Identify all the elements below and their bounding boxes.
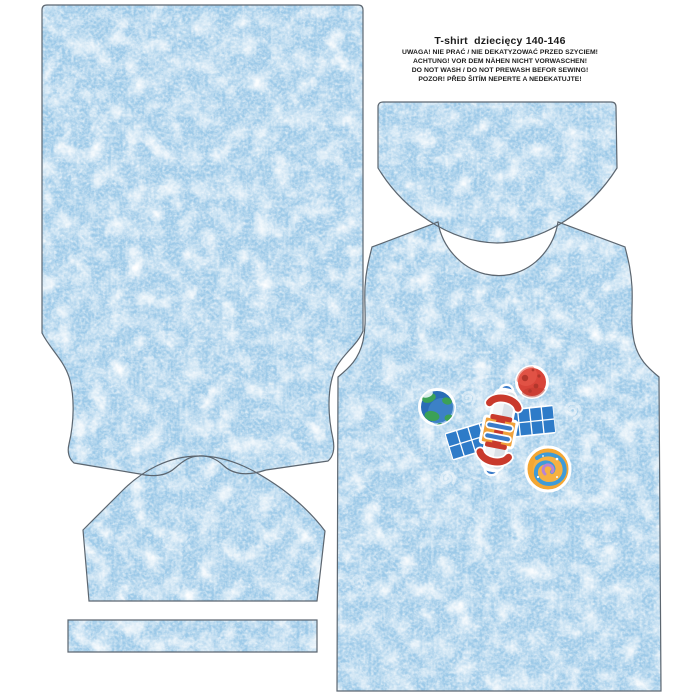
- back-panel-piece: [42, 5, 363, 476]
- spiral-galaxy-icon: [526, 447, 570, 491]
- header-text-block: T-shirt dziecięcy 140-146 UWAGA! NIE PRA…: [330, 35, 670, 84]
- care-warning-line-pl: UWAGA! NIE PRAĆ / NIE DEKATYZOWAĆ PRZED …: [330, 48, 670, 57]
- panel-title: T-shirt dziecięcy 140-146: [330, 35, 670, 48]
- pattern-panel-canvas: [0, 0, 700, 700]
- pattern-panel-preview: T-shirt dziecięcy 140-146 UWAGA! NIE PRA…: [0, 0, 700, 700]
- care-warning-line-cz: POZOR! PŘED ŠITÍM NEPERTE A NEDEKATUJTE!: [330, 75, 670, 84]
- care-warning-line-en: DO NOT WASH / DO NOT PREWASH BEFOR SEWIN…: [330, 66, 670, 75]
- hem-band-piece: [68, 620, 317, 652]
- care-warning-line-de: ACHTUNG! VOR DEM NÄHEN NICHT VORWASCHEN!: [330, 57, 670, 66]
